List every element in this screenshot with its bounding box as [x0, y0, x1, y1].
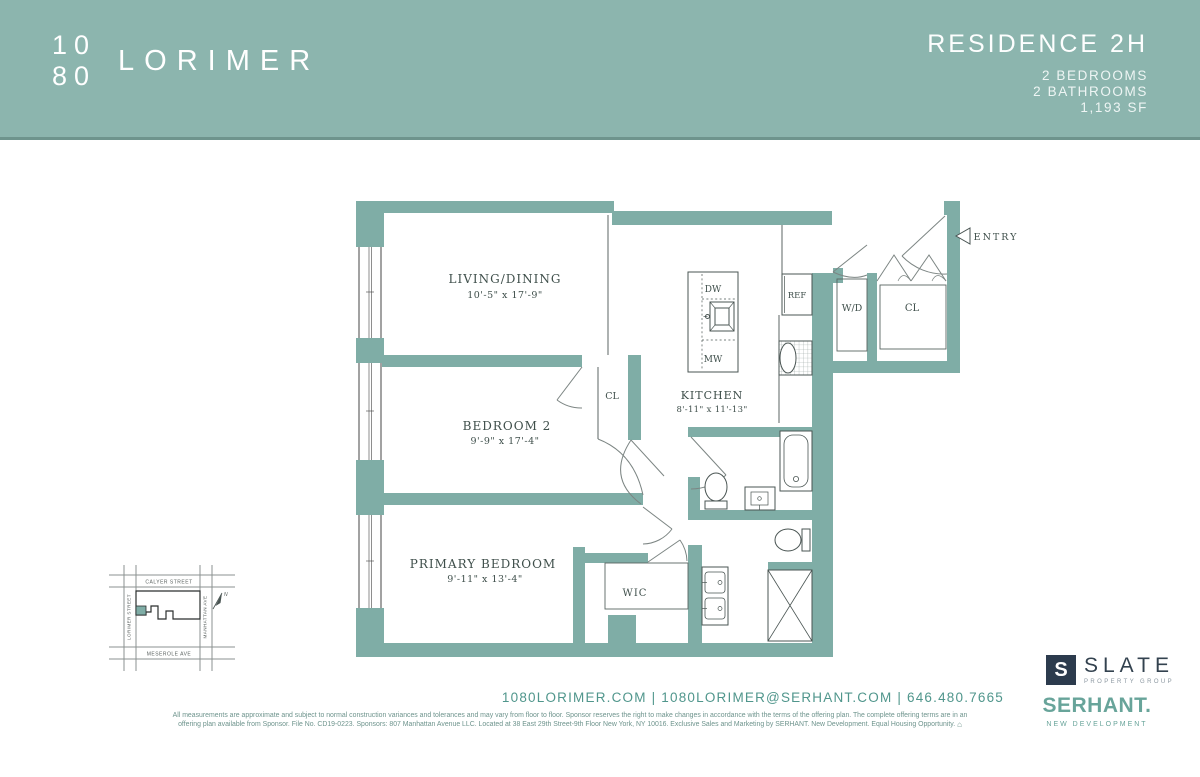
bathroom-sink-icon [745, 487, 775, 510]
windows [358, 247, 382, 608]
north-arrow-icon: N [213, 592, 228, 609]
street-label-top: CALYER STREET [145, 580, 192, 586]
kitchen-dims: 8'-11" x 11'-13" [676, 405, 747, 415]
toilet-icon [705, 473, 727, 509]
bathroom1-fixtures [705, 431, 812, 510]
disclaimer-line-1: All measurements are approximate and sub… [128, 711, 1012, 720]
contact-line[interactable]: 1080LORIMER.COM | 1080LORIMER@SERHANT.CO… [502, 690, 1004, 705]
bedroom2-label: BEDROOM 2 [463, 419, 552, 433]
dishwasher-label: DW [705, 285, 722, 295]
building-logo: 10 80 LORIMER [52, 30, 320, 92]
page: 10 80 LORIMER RESIDENCE 2H 2 BEDROOMS 2 … [0, 0, 1200, 777]
equal-housing-icon: ⌂ [957, 720, 962, 729]
bedrooms-count: 2 BEDROOMS [927, 68, 1148, 84]
living-room-dims: 10'-5" x 17'-9" [467, 290, 543, 301]
bedroom-closet-label: CL [605, 391, 619, 402]
bathroom2-fixtures [702, 529, 812, 641]
primary-bedroom-label: PRIMARY BEDROOM [410, 557, 556, 571]
header-band: 10 80 LORIMER RESIDENCE 2H 2 BEDROOMS 2 … [0, 0, 1200, 140]
serhant-logo: SERHANT. NEW DEVELOPMENT [1038, 694, 1156, 728]
serhant-subtitle: NEW DEVELOPMENT [1038, 721, 1156, 728]
primary-bedroom-dims: 9'-11" x 13'-4" [447, 574, 523, 585]
bathtub-icon [780, 431, 812, 491]
slate-name: SLATE [1084, 655, 1174, 676]
window-icon [358, 247, 382, 338]
refrigerator-label: REF [788, 291, 807, 301]
washer-dryer-label: W/D [842, 303, 863, 314]
double-vanity-icon [702, 567, 728, 625]
bathrooms-count: 2 BATHROOMS [927, 84, 1148, 100]
floor-plan: LIVING/DINING 10'-5" x 17'-9" BEDROOM 2 … [350, 195, 1020, 675]
serhant-name: SERHANT. [1038, 694, 1156, 718]
legal-disclaimer: All measurements are approximate and sub… [128, 711, 1012, 729]
wic-label: WIC [623, 588, 648, 599]
bedroom2-dims: 9'-9" x 17'-4" [470, 436, 539, 447]
square-footage: 1,193 SF [927, 100, 1148, 116]
slate-mark-icon: S [1046, 655, 1076, 685]
range-icon [779, 341, 812, 375]
slate-subtitle: PROPERTY GROUP [1084, 679, 1174, 685]
street-label-bottom: MESEROLE AVE [147, 652, 192, 658]
location-map: N CALYER STREET MESEROLE AVE LORIMER STR… [105, 562, 239, 674]
logo-wordmark: LORIMER [118, 45, 320, 78]
walls [356, 201, 960, 657]
unit-location-marker [136, 606, 146, 615]
residence-info: RESIDENCE 2H 2 BEDROOMS 2 BATHROOMS 1,19… [927, 30, 1148, 116]
room-labels: LIVING/DINING 10'-5" x 17'-9" BEDROOM 2 … [410, 232, 1019, 599]
street-label-right: MANHATTAN AVE [203, 596, 208, 639]
entry-label: ENTRY [974, 232, 1019, 243]
logo-number-row1: 10 [52, 30, 96, 61]
microwave-label: MW [704, 355, 723, 365]
logo-number-row2: 80 [52, 61, 96, 92]
residence-title: RESIDENCE 2H [927, 30, 1148, 59]
living-room-label: LIVING/DINING [449, 272, 562, 286]
shower-icon [768, 570, 812, 641]
street-label-left: LORIMER STREET [127, 594, 132, 640]
closet-outlines [605, 279, 946, 609]
logo-numbers: 10 80 [52, 30, 96, 92]
toilet-icon [775, 529, 810, 551]
north-label: N [224, 592, 228, 598]
entry-closet-label: CL [905, 303, 920, 314]
slate-logo: S SLATE PROPERTY GROUP [1046, 655, 1174, 685]
kitchen-label: KITCHEN [681, 389, 744, 402]
window-icon [358, 363, 382, 460]
window-icon [358, 515, 382, 608]
disclaimer-line-2: offering plan available from Sponsor. Fi… [128, 720, 1012, 729]
residence-details: 2 BEDROOMS 2 BATHROOMS 1,193 SF [927, 68, 1148, 116]
